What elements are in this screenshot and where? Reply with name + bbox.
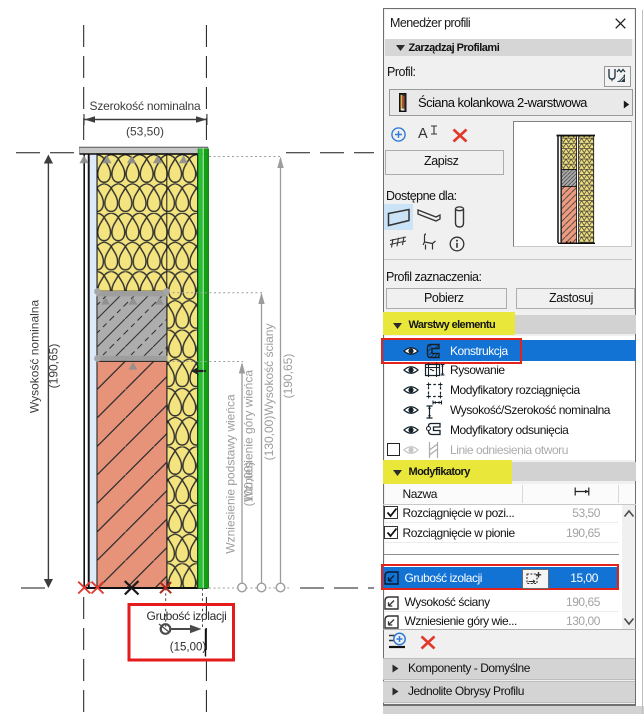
svg-text:(15,00): (15,00) (170, 642, 207, 654)
svg-text:(53,50): (53,50) (126, 125, 164, 139)
svg-text:(100,00): (100,00) (242, 462, 256, 507)
svg-text:Szerokość nominalna: Szerokość nominalna (90, 99, 201, 113)
svg-text:Wzniesienie podstawy wieńca: Wzniesienie podstawy wieńca (224, 394, 238, 554)
svg-text:Grubość izolacji: Grubość izolacji (147, 609, 227, 623)
svg-text:(190,65): (190,65) (281, 354, 295, 399)
svg-text:Wysokość ściany: Wysokość ściany (262, 324, 276, 416)
svg-text:Wysokość nominalna: Wysokość nominalna (28, 300, 42, 414)
svg-text:(130,00): (130,00) (262, 416, 276, 461)
svg-text:(190,65): (190,65) (47, 344, 61, 389)
